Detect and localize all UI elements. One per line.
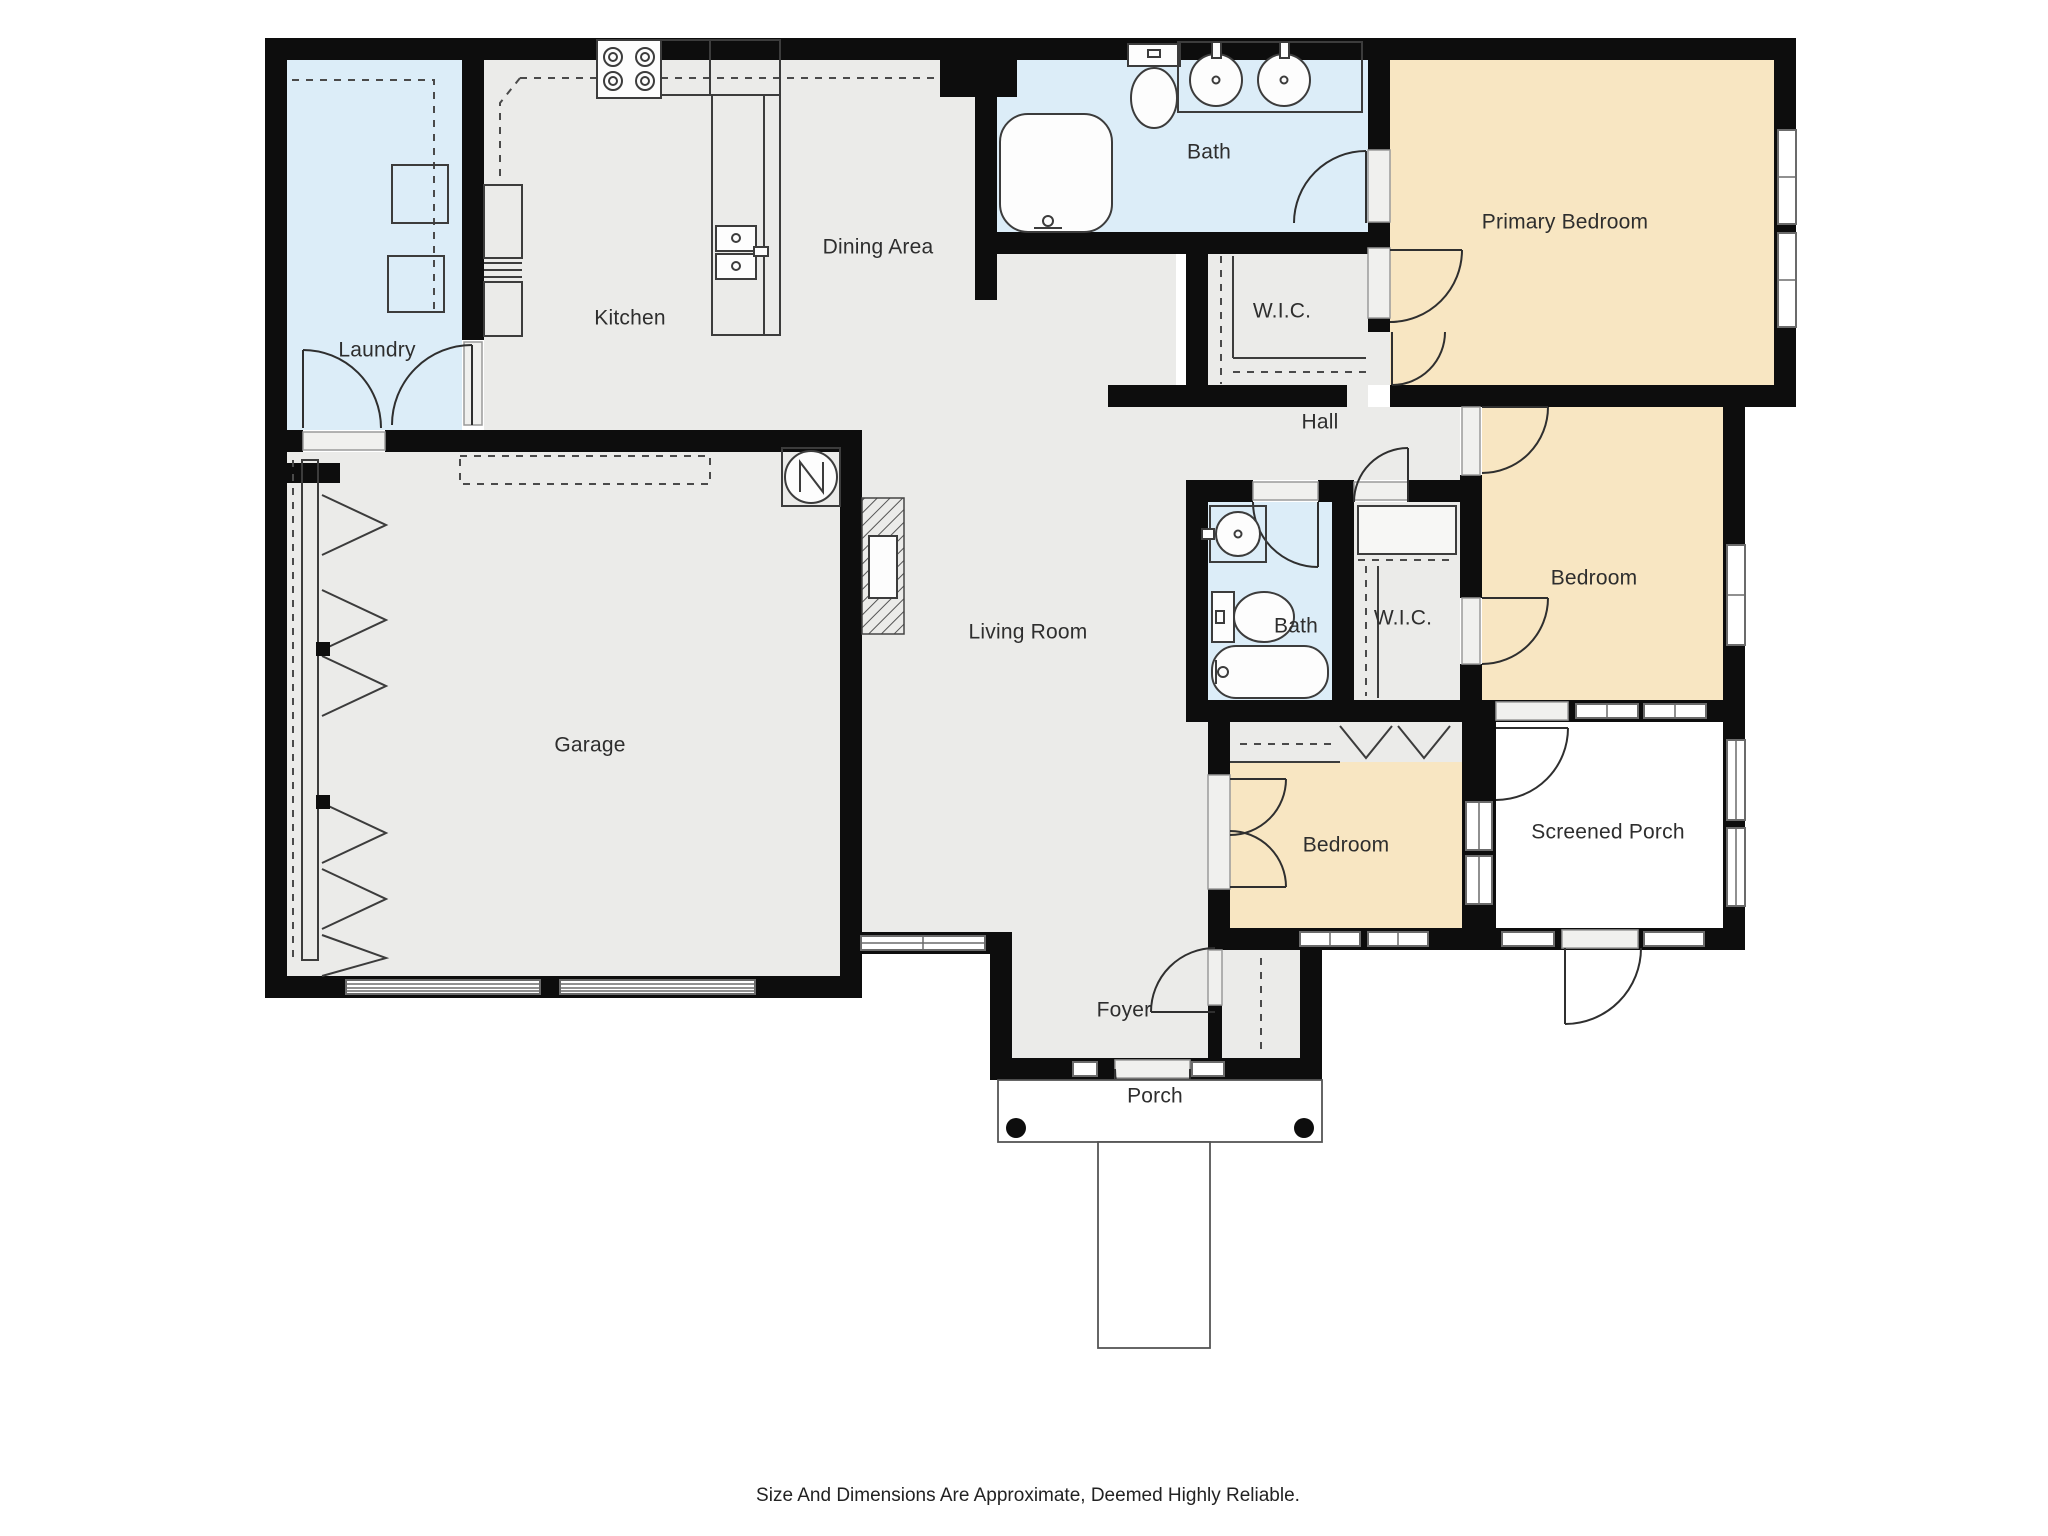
living-floor (862, 430, 1208, 932)
fireplace-icon (862, 498, 904, 634)
foyer-floor (1012, 932, 1208, 1058)
bedroom-closet-strip (1230, 722, 1462, 762)
toilet-icon (1128, 44, 1180, 128)
wall-block (940, 38, 1017, 97)
floor-plan-drawing (0, 0, 2048, 1536)
footer-disclaimer: Size And Dimensions Are Approximate, Dee… (756, 1485, 1300, 1507)
garage-floor (287, 452, 840, 976)
room-label-garage: Garage (554, 732, 625, 757)
linen-cabinet-icon (1358, 506, 1456, 554)
room-label-kitchen: Kitchen (594, 305, 665, 330)
room-label-wic-top: W.I.C. (1253, 298, 1311, 323)
laundry-floor (287, 60, 462, 430)
room-label-living-room: Living Room (969, 619, 1088, 644)
room-label-bedroom-right: Bedroom (1551, 565, 1638, 590)
room-label-laundry: Laundry (338, 337, 415, 362)
floor-plan-page: Laundry Kitchen Dining Area Bath Primary… (0, 0, 2048, 1536)
stove-icon (597, 40, 661, 98)
room-label-foyer: Foyer (1097, 997, 1152, 1022)
room-label-bedroom-bottom: Bedroom (1303, 832, 1390, 857)
room-label-hall: Hall (1302, 409, 1339, 434)
room-label-bath-top: Bath (1187, 139, 1231, 164)
room-label-primary-bedroom: Primary Bedroom (1482, 209, 1648, 234)
room-label-screened-porch: Screened Porch (1531, 819, 1684, 844)
porch-post-icon (1294, 1118, 1314, 1138)
room-label-porch: Porch (1127, 1083, 1183, 1108)
room-label-dining-area: Dining Area (823, 234, 934, 259)
walkway-icon (1098, 1142, 1210, 1348)
room-label-bath-mid: Bath (1274, 613, 1318, 638)
front-porch (998, 1080, 1322, 1348)
room-label-wic-mid: W.I.C. (1374, 605, 1432, 630)
garage-wall-stub (287, 463, 340, 483)
bathtub-icon (1000, 114, 1112, 232)
bathtub-icon (1212, 646, 1328, 698)
porch-post-icon (1006, 1118, 1026, 1138)
